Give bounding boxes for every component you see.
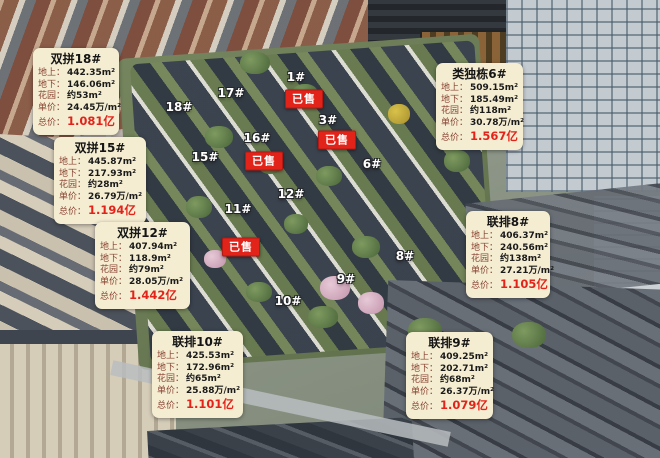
info-box-title: 双拼12# xyxy=(100,226,185,240)
tree-cluster xyxy=(512,322,546,348)
info-row: 单价：24.45万/m² xyxy=(38,103,114,115)
unit-label-3: 3# xyxy=(319,114,337,126)
tree-cluster xyxy=(284,214,308,234)
info-box-title: 联排10# xyxy=(157,335,238,349)
sold-badge: 已售 xyxy=(285,90,323,109)
unit-label-17: 17# xyxy=(218,87,245,99)
info-row: 地上：425.53m² xyxy=(157,351,238,363)
info-box-townhouse-8: 联排8# 地上：406.37m² 地下：240.56m² 花园：约138m² 单… xyxy=(466,211,550,298)
info-row: 地上：409.25m² xyxy=(411,352,488,364)
aerial-annotation-image: 18# 17# 1# 3# 16# 15# 6# 12# 11# 8# 9# 1… xyxy=(0,0,660,458)
info-row: 单价：26.37万/m² xyxy=(411,387,488,399)
unit-label-6: 6# xyxy=(363,158,381,170)
unit-label-9: 9# xyxy=(337,273,355,285)
info-row-total-price: 总价：1.567亿 xyxy=(441,129,518,145)
unit-label-16: 16# xyxy=(244,132,271,144)
info-box-townhouse-10: 联排10# 地上：425.53m² 地下：172.96m² 花园：约65m² 单… xyxy=(152,331,243,418)
info-row: 地下：240.56m² xyxy=(471,243,545,255)
info-row: 地上：445.87m² xyxy=(59,157,141,169)
info-box-title: 联排8# xyxy=(471,215,545,229)
info-row: 地上：407.94m² xyxy=(100,242,185,254)
info-box-title: 双拼15# xyxy=(59,141,141,155)
info-box-title: 类独栋6# xyxy=(441,67,518,81)
info-row: 花园：约28m² xyxy=(59,180,141,192)
info-box-title: 联排9# xyxy=(411,336,488,350)
info-row-total-price: 总价：1.442亿 xyxy=(100,288,185,304)
unit-label-15: 15# xyxy=(192,151,219,163)
info-row: 地下：202.71m² xyxy=(411,364,488,376)
info-box-townhouse-9: 联排9# 地上：409.25m² 地下：202.71m² 花园：约68m² 单价… xyxy=(406,332,493,419)
tree-cluster xyxy=(444,150,470,172)
tree-cluster xyxy=(316,166,342,186)
info-row: 单价：30.78万/m² xyxy=(441,118,518,130)
info-row: 花园：约65m² xyxy=(157,374,238,386)
highrise-tower xyxy=(506,0,660,192)
sold-badge: 已售 xyxy=(245,152,283,171)
info-row: 花园：约138m² xyxy=(471,254,545,266)
info-row-total-price: 总价：1.079亿 xyxy=(411,398,488,414)
tree-cluster xyxy=(308,306,338,328)
info-row: 地上：509.15m² xyxy=(441,83,518,95)
info-box-duplex-18: 双拼18# 地上：442.35m² 地下：146.06m² 花园：约53m² 单… xyxy=(33,48,119,135)
info-row: 单价：28.05万/m² xyxy=(100,277,185,289)
pink-blossom-tree xyxy=(358,292,384,314)
yellow-tree xyxy=(388,104,410,124)
info-row: 单价：25.88万/m² xyxy=(157,386,238,398)
info-row: 花园：约53m² xyxy=(38,91,114,103)
unit-label-11: 11# xyxy=(225,203,252,215)
unit-label-18: 18# xyxy=(166,101,193,113)
info-box-title: 双拼18# xyxy=(38,52,114,66)
info-row: 地下：217.93m² xyxy=(59,169,141,181)
info-row: 花园：约68m² xyxy=(411,375,488,387)
info-row: 单价：27.21万/m² xyxy=(471,266,545,278)
sold-badge: 已售 xyxy=(318,131,356,150)
info-row: 地下：172.96m² xyxy=(157,363,238,375)
info-box-duplex-15: 双拼15# 地上：445.87m² 地下：217.93m² 花园：约28m² 单… xyxy=(54,137,146,224)
unit-label-10: 10# xyxy=(275,295,302,307)
info-row-total-price: 总价：1.194亿 xyxy=(59,203,141,219)
info-row: 地上：406.37m² xyxy=(471,231,545,243)
info-box-duplex-12: 双拼12# 地上：407.94m² 地下：118.9m² 花园：约79m² 单价… xyxy=(95,222,190,309)
sold-badge: 已售 xyxy=(222,238,260,257)
info-row: 地上：442.35m² xyxy=(38,68,114,80)
tree-cluster xyxy=(186,196,212,218)
tree-cluster xyxy=(205,126,233,148)
info-row: 地下：118.9m² xyxy=(100,254,185,266)
unit-label-1: 1# xyxy=(287,71,305,83)
tree-cluster xyxy=(352,236,380,258)
info-row: 地下：146.06m² xyxy=(38,80,114,92)
info-row: 花园：约118m² xyxy=(441,106,518,118)
info-row-total-price: 总价：1.105亿 xyxy=(471,277,545,293)
info-row: 花园：约79m² xyxy=(100,265,185,277)
info-box-detached-6: 类独栋6# 地上：509.15m² 地下：185.49m² 花园：约118m² … xyxy=(436,63,523,150)
info-row-total-price: 总价：1.081亿 xyxy=(38,114,114,130)
info-row: 地下：185.49m² xyxy=(441,95,518,107)
info-row: 单价：26.79万/m² xyxy=(59,192,141,204)
unit-label-12: 12# xyxy=(278,188,305,200)
unit-label-8: 8# xyxy=(396,250,414,262)
tree-cluster xyxy=(246,282,272,302)
tree-cluster xyxy=(240,52,270,74)
info-row-total-price: 总价：1.101亿 xyxy=(157,397,238,413)
